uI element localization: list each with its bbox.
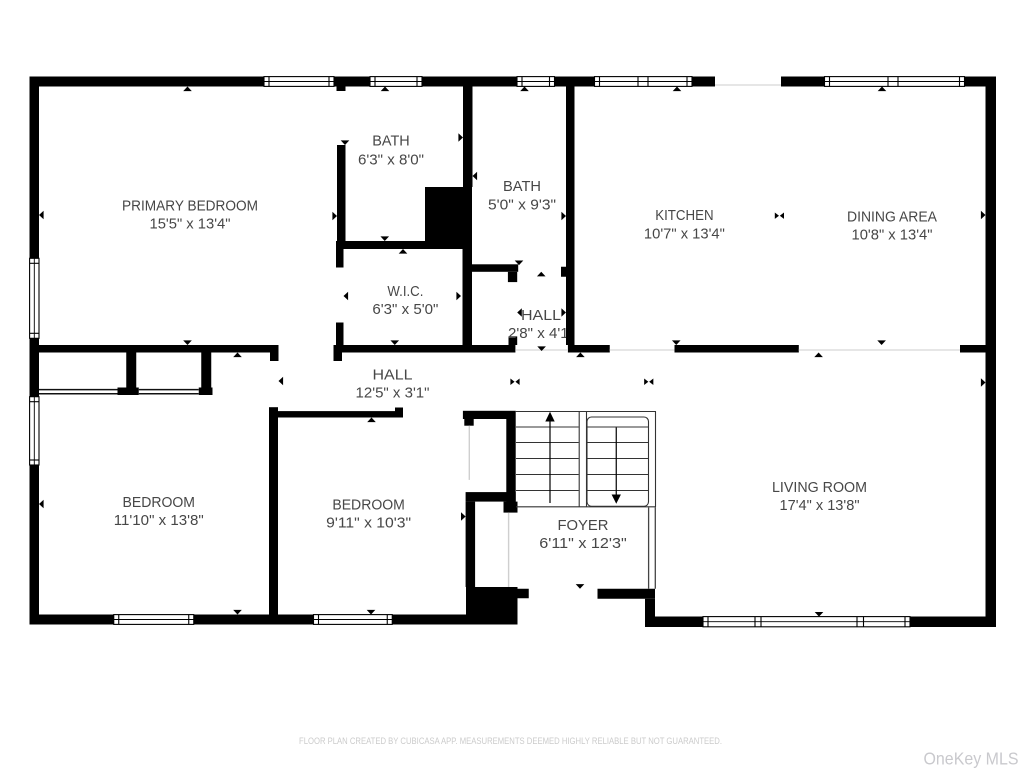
svg-text:10'7" x 13'4": 10'7" x 13'4" [644, 226, 725, 243]
svg-text:2'8" x 4'1": 2'8" x 4'1" [508, 325, 574, 342]
svg-text:HALL: HALL [521, 307, 561, 324]
svg-text:LIVING ROOM: LIVING ROOM [772, 479, 867, 496]
svg-text:17'4" x 13'8": 17'4" x 13'8" [780, 497, 860, 514]
svg-text:BEDROOM: BEDROOM [123, 494, 196, 511]
svg-text:6'3" x 8'0": 6'3" x 8'0" [358, 152, 424, 169]
svg-text:12'5" x 3'1": 12'5" x 3'1" [356, 385, 430, 402]
svg-text:FLOOR PLAN CREATED BY CUBICASA: FLOOR PLAN CREATED BY CUBICASA APP. MEAS… [299, 736, 722, 747]
svg-text:5'0" x 9'3": 5'0" x 9'3" [488, 197, 556, 214]
svg-text:PRIMARY BEDROOM: PRIMARY BEDROOM [122, 198, 258, 215]
svg-text:11'10" x 13'8": 11'10" x 13'8" [114, 512, 204, 529]
svg-text:HALL: HALL [373, 367, 413, 384]
svg-text:BATH: BATH [503, 178, 541, 195]
svg-text:FOYER: FOYER [558, 517, 609, 534]
svg-text:KITCHEN: KITCHEN [655, 207, 713, 224]
svg-text:15'5" x 13'4": 15'5" x 13'4" [150, 216, 231, 233]
svg-text:6'3" x 5'0": 6'3" x 5'0" [372, 301, 438, 318]
svg-text:OneKey MLS: OneKey MLS [924, 749, 1019, 768]
svg-text:9'11" x 10'3": 9'11" x 10'3" [326, 515, 411, 532]
svg-text:BATH: BATH [372, 133, 410, 150]
svg-text:BEDROOM: BEDROOM [332, 497, 405, 514]
svg-text:10'8" x 13'4": 10'8" x 13'4" [852, 227, 933, 244]
svg-text:W.I.C.: W.I.C. [387, 283, 423, 300]
svg-text:6'11" x 12'3": 6'11" x 12'3" [539, 535, 627, 552]
svg-text:DINING AREA: DINING AREA [847, 209, 937, 226]
